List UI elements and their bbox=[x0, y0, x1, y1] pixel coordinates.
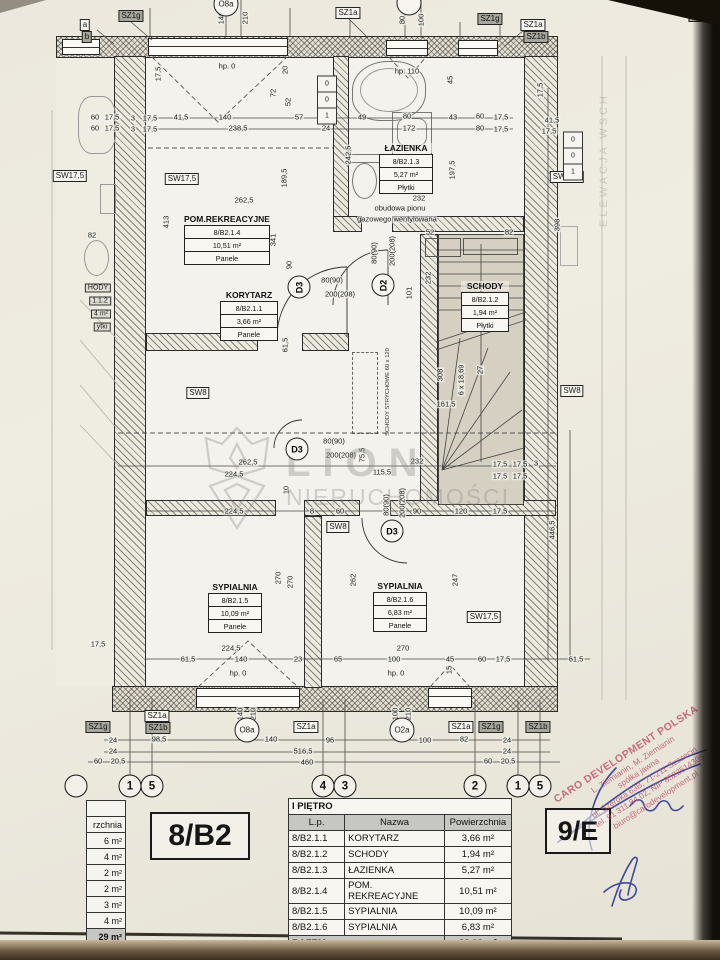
room-floor: Panele bbox=[209, 620, 261, 632]
frag-value: 4 m² bbox=[87, 849, 126, 865]
table-title: I PIĘTRO bbox=[289, 799, 512, 815]
room-area: 3,66 m² bbox=[221, 315, 277, 328]
room-name: KORYTARZ bbox=[220, 290, 278, 300]
cell-id: 8/B2.1.6 bbox=[289, 920, 345, 936]
frag-value: 2 m² bbox=[87, 881, 126, 897]
door-tag-d3-mid: D3 bbox=[286, 438, 309, 461]
room-name: SCHODY bbox=[461, 281, 509, 291]
cell-area: 10,51 m² bbox=[444, 879, 511, 904]
frag-value: 4 m² bbox=[87, 913, 126, 929]
table-row: 8/B2.1.4POM. REKREACYJNE10,51 m² bbox=[289, 879, 512, 904]
door-label: D3 bbox=[386, 526, 398, 536]
grid-bubble bbox=[65, 775, 88, 798]
room-area: 10,51 m² bbox=[185, 239, 269, 252]
room-area: 10,09 m² bbox=[209, 607, 261, 620]
col-lp: L.p. bbox=[289, 815, 345, 831]
grid-bubble-4: 4 bbox=[312, 775, 335, 798]
cell-area: 5,27 m² bbox=[444, 863, 511, 879]
grid-bubble-5: 5 bbox=[141, 775, 164, 798]
room-name: ŁAZIENKA bbox=[379, 143, 433, 153]
frag-value: 2 m² bbox=[87, 865, 126, 881]
grid-bubble-5b: 5 bbox=[529, 775, 552, 798]
grid-bubble-1: 1 bbox=[119, 775, 142, 798]
cell-name: ŁAZIENKA bbox=[345, 863, 445, 879]
photo-edge-bottom bbox=[0, 940, 720, 960]
room-label-pom-rekreacyjne: POM.REKREACYJNE 8/B2.1.410,51 m²Panele bbox=[184, 214, 270, 265]
room-label-sypialnia-2: SYPIALNIA 8/B2.1.66,83 m²Panele bbox=[373, 581, 427, 632]
room-id: 8/B2.1.6 bbox=[374, 593, 426, 606]
elevation-note: ELEWACJA WSCH bbox=[598, 93, 610, 227]
room-floor: Płytki bbox=[380, 181, 432, 193]
cell-area: 1,94 m² bbox=[444, 847, 511, 863]
col-nazwa: Nazwa bbox=[345, 815, 445, 831]
door-tag-d3-bedroom: D3 bbox=[381, 520, 404, 543]
room-name: SYPIALNIA bbox=[373, 581, 427, 591]
room-id: 8/B2.1.1 bbox=[221, 302, 277, 315]
cell-id: 8/B2.1.4 bbox=[289, 879, 345, 904]
room-id: 8/B2.1.4 bbox=[185, 226, 269, 239]
door-tag-d3-corridor: D3 bbox=[288, 276, 311, 299]
cell-name: SYPIALNIA bbox=[345, 920, 445, 936]
unit-label-text: 8/B2 bbox=[168, 819, 231, 853]
table-row: 8/B2.1.3ŁAZIENKA5,27 m² bbox=[289, 863, 512, 879]
cell-id: 8/B2.1.1 bbox=[289, 831, 345, 847]
room-label-korytarz: KORYTARZ 8/B2.1.13,66 m²Panele bbox=[220, 290, 278, 341]
door-label: D3 bbox=[291, 444, 303, 454]
frag-header: rzchnia bbox=[87, 817, 126, 833]
grid-bubble-3: 3 bbox=[334, 775, 357, 798]
cell-name: POM. REKREACYJNE bbox=[345, 879, 445, 904]
room-id: 8/B2.1.3 bbox=[380, 155, 432, 168]
room-floor: Panele bbox=[185, 252, 269, 264]
door-tag-d2-bath: D2 bbox=[372, 274, 395, 297]
table-row: 8/B2.1.1KORYTARZ3,66 m² bbox=[289, 831, 512, 847]
photographed-floor-plan-page: POM.REKREACYJNE 8/B2.1.410,51 m²Panele K… bbox=[0, 0, 720, 960]
frag-value: 6 m² bbox=[87, 833, 126, 849]
area-table: I PIĘTRO L.p. Nazwa Powierzchnia 8/B2.1.… bbox=[288, 798, 512, 952]
room-label-lazienka: ŁAZIENKA 8/B2.1.35,27 m²Płytki bbox=[379, 143, 433, 194]
door-label: D3 bbox=[294, 281, 304, 293]
col-powierzchnia: Powierzchnia bbox=[444, 815, 511, 831]
room-name: POM.REKREACYJNE bbox=[184, 214, 270, 224]
table-row: 8/B2.1.6SYPIALNIA6,83 m² bbox=[289, 920, 512, 936]
shaft-note-line1: obudowa pionu bbox=[375, 204, 426, 213]
cell-id: 8/B2.1.2 bbox=[289, 847, 345, 863]
room-label-sypialnia-1: SYPIALNIA 8/B2.1.510,09 m²Panele bbox=[208, 582, 262, 633]
grid-bubble-2: 2 bbox=[464, 775, 487, 798]
room-area: 5,27 m² bbox=[380, 168, 432, 181]
door-label: D2 bbox=[378, 279, 388, 291]
cell-name: SYPIALNIA bbox=[345, 904, 445, 920]
room-id: 8/B2.1.5 bbox=[209, 594, 261, 607]
cell-area: 3,66 m² bbox=[444, 831, 511, 847]
unit-label-8b2: 8/B2 bbox=[150, 812, 250, 860]
attic-stairs-note: SCHODY STRYCHOWE 60 x 120 bbox=[385, 348, 391, 436]
cell-id: 8/B2.1.5 bbox=[289, 904, 345, 920]
table-row: 8/B2.1.5SYPIALNIA10,09 m² bbox=[289, 904, 512, 920]
room-floor: Płytki bbox=[462, 319, 508, 331]
neighbor-table-fragment: rzchnia 6 m² 4 m² 2 m² 2 m² 3 m² 4 m² 29… bbox=[86, 800, 126, 945]
grid-bubble-1b: 1 bbox=[507, 775, 530, 798]
room-area: 6,83 m² bbox=[374, 606, 426, 619]
shaft-note-line2: gazowego wentylowana bbox=[357, 215, 437, 224]
cell-area: 10,09 m² bbox=[444, 904, 511, 920]
room-floor: Panele bbox=[221, 328, 277, 340]
frag-value: 3 m² bbox=[87, 897, 126, 913]
cell-name: KORYTARZ bbox=[345, 831, 445, 847]
room-label-schody: SCHODY 8/B2.1.21,94 m²Płytki bbox=[461, 281, 509, 332]
room-name: SYPIALNIA bbox=[208, 582, 262, 592]
photo-edge-right bbox=[692, 0, 720, 960]
table-row: 8/B2.1.2SCHODY1,94 m² bbox=[289, 847, 512, 863]
cell-name: SCHODY bbox=[345, 847, 445, 863]
room-area: 1,94 m² bbox=[462, 306, 508, 319]
room-id: 8/B2.1.2 bbox=[462, 293, 508, 306]
room-floor: Panele bbox=[374, 619, 426, 631]
cell-id: 8/B2.1.3 bbox=[289, 863, 345, 879]
cell-area: 6,83 m² bbox=[444, 920, 511, 936]
